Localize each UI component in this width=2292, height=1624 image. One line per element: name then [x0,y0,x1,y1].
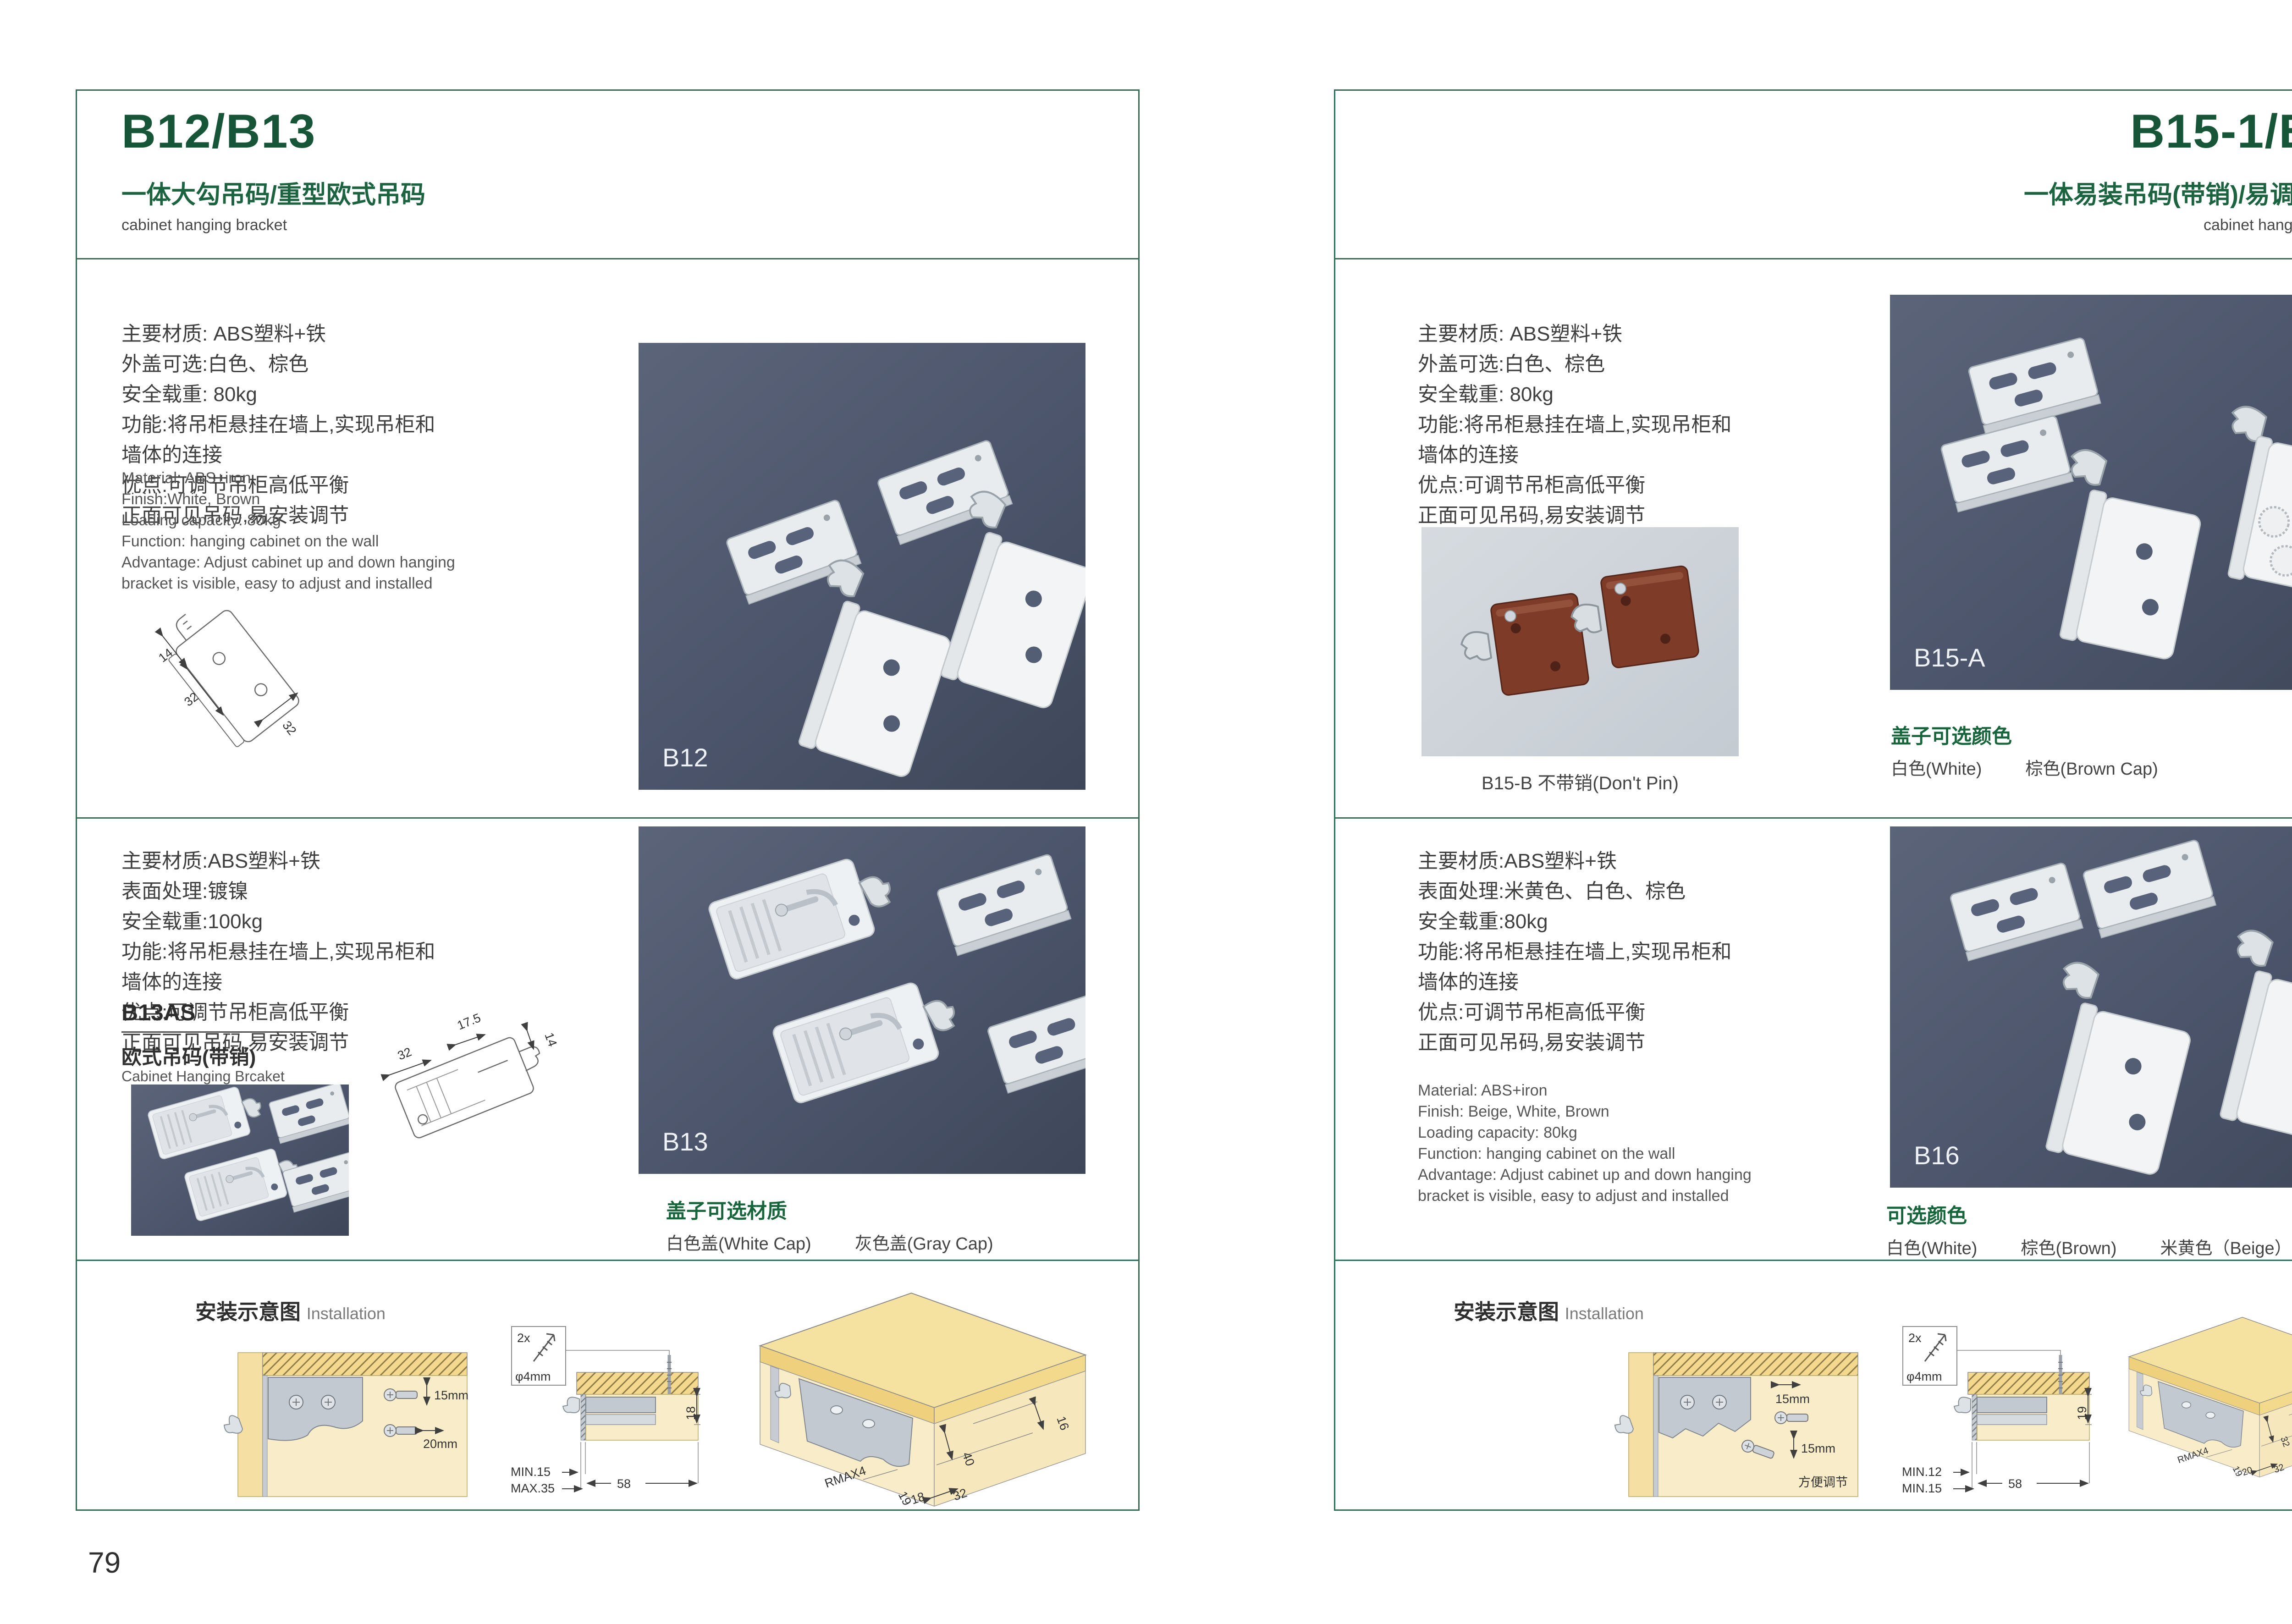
spec-line: 正面可见吊码,易安装调节 [1418,1028,1731,1058]
page-title: B12/B13 [121,105,316,159]
spec-line: 墙体的连接 [121,440,435,470]
install-diagram-screws: 2x φ4mm 18 MIN.15 MAX.35 58 [508,1323,705,1502]
section-divider [77,1260,1138,1261]
spec-line: 表面处理:镀镍 [121,876,435,907]
installation-header: 安装示意图 Installation [195,1295,386,1326]
dimension-label: MIN.15 [1902,1481,1942,1495]
section-divider [77,817,1138,819]
cap-options: 白色盖(White Cap)灰色盖(Gray Cap) [666,1229,1037,1255]
dimension-label: 15mm [1775,1392,1810,1406]
cap-option: 棕色(Brown Cap) [2025,760,2158,779]
dimension-label: 19 [2075,1406,2089,1420]
dimension-label: 32 [280,718,299,738]
cap-color-options: 白色(White)棕色(Brown Cap) [1891,754,2202,780]
spec-line: 安全载重:100kg [121,907,435,937]
spec-line: 表面处理:米黄色、白色、棕色 [1418,876,1731,907]
b13as-dimension-drawing: 32 17.5 14 [366,1005,581,1156]
b12-product-illustration [639,343,1085,790]
cap-option: 灰色盖(Gray Cap) [855,1234,993,1254]
page-title: B15-1/B16 [2130,105,2292,159]
photo-label: B15-A [1914,643,1985,672]
page-subtitle: 一体大勾吊码/重型欧式吊码 [121,174,425,210]
header-divider [77,258,1138,259]
install-diagram-section: 15mm 15mm 方便调节 [1610,1349,1860,1500]
spec-line: 墙体的连接 [121,967,435,997]
b15a-product-illustration [1890,295,2292,690]
model-name-cn: 欧式吊码(带销) [121,1040,256,1070]
screw-diameter-label: φ4mm [1906,1370,1942,1383]
page-subtitle: 一体易装吊码(带销)/易调节吊码 [2024,174,2292,210]
photo-label: B16 [1914,1140,1960,1170]
spec-line: 主要材质: ABS塑料+铁 [1418,319,1731,349]
b13-product-illustration [639,826,1085,1174]
spec-line: 外盖可选:白色、棕色 [121,349,435,380]
install-diagram-screws: 2x φ4mm 19 MIN.12 MIN.15 58 [1899,1323,2096,1502]
spec-line: Loading capacity: 80kg [121,510,455,531]
install-diagram-perspective: 16 40 RMAX4 19 18 32 [716,1272,1120,1507]
caption-text: B15-B 不带销(Don't Pin) [1482,773,1679,793]
dimension-label: 58 [2008,1477,2022,1491]
spec-line: 功能:将吊柜悬挂在墙上,实现吊柜和 [121,937,435,967]
b16-specs-en: Material: ABS+iron Finish: Beige, White,… [1418,1080,1752,1206]
photo-label: B13 [662,1127,708,1156]
color-option: 米黄色（Beige） [2160,1239,2292,1258]
spec-line: 安全载重: 80kg [1418,380,1731,410]
spec-line: 主要材质:ABS塑料+铁 [121,846,435,876]
b16-product-photo: B16 [1890,826,2292,1188]
b16-product-illustration [1890,826,2292,1188]
spec-line: Material: ABS+iron [121,468,455,489]
install-diagram-section: 15mm 20mm [211,1349,477,1500]
installation-header: 安装示意图 Installation [1454,1295,1644,1326]
installation-title-cn: 安装示意图 [195,1300,301,1324]
installation-title-en: Installation [1565,1304,1644,1323]
section-divider [1335,1260,2292,1261]
photo-label: B12 [662,743,708,772]
color-options: 白色(White)棕色(Brown)米黄色（Beige） [1886,1234,2292,1259]
b16-specs-cn: 主要材质:ABS塑料+铁 表面处理:米黄色、白色、棕色 安全载重:80kg 功能… [1418,846,1731,1058]
page-subtitle-en: cabinet hanging bracket [121,216,287,234]
spec-line: 优点:可调节吊柜高低平衡 [1418,997,1731,1028]
spec-line: Advantage: Adjust cabinet up and down ha… [1418,1164,1752,1185]
dimension-label: 15mm [1801,1442,1835,1455]
spec-line: 主要材质: ABS塑料+铁 [121,319,435,349]
cap-option: 白色盖(White Cap) [666,1234,811,1254]
cap-options-title: 盖子可选材质 [666,1195,787,1224]
model-underline [121,1031,316,1033]
spec-line: 功能:将吊柜悬挂在墙上,实现吊柜和 [1418,410,1731,440]
dimension-label: 14 [542,1031,559,1048]
cap-option: 白色(White) [1891,760,1982,779]
b15a-product-photo: B15-A [1890,295,2292,690]
b12-specs-en: Material: ABS+iron Finish:White, Brown L… [121,468,455,594]
spec-line: Loading capacity: 80kg [1418,1122,1752,1143]
installation-title-cn: 安装示意图 [1454,1300,1559,1324]
spec-line: Material: ABS+iron [1418,1080,1752,1101]
spec-line: 安全载重:80kg [1418,907,1731,937]
b12-product-photo: B12 [639,343,1085,790]
spec-line: 安全载重: 80kg [121,380,435,410]
spec-line: Function: hanging cabinet on the wall [1418,1143,1752,1164]
b12-dimension-drawing: 14 32 32 [121,578,322,775]
screw-qty-label: 2x [1908,1331,1922,1345]
color-option: 棕色(Brown) [2021,1239,2116,1258]
dimension-label: 32 [396,1045,413,1062]
screw-qty-label: 2x [517,1331,530,1345]
color-options-title: 可选颜色 [1886,1199,1967,1228]
dimension-label: MIN.15 [511,1465,551,1479]
b13-product-photo: B13 [639,826,1085,1174]
install-diagram-perspective: 30 32 RMAX4 19 20 32 [2096,1272,2292,1507]
dimension-label: 18 [684,1406,698,1420]
spec-line: Function: hanging cabinet on the wall [121,531,455,552]
spec-line: 功能:将吊柜悬挂在墙上,实现吊柜和 [121,410,435,440]
b13as-product-photo [131,1085,349,1236]
b13as-product-illustration [131,1085,349,1236]
catalog-page-left: B12/B13 一体大勾吊码/重型欧式吊码 cabinet hanging br… [76,89,1140,1511]
section-divider [1335,817,2292,819]
screw-diameter-label: φ4mm [515,1370,551,1383]
dimension-label: 20mm [423,1437,457,1451]
spec-line: bracket is visible, easy to adjust and i… [1418,1185,1752,1206]
spec-line: 外盖可选:白色、棕色 [1418,349,1731,380]
spec-line: 墙体的连接 [1418,967,1731,997]
b15b-photo-caption: B15-B 不带销(Don't Pin) [1421,768,1739,795]
dimension-label: 58 [617,1477,631,1491]
b15b-product-illustration [1421,527,1739,756]
catalog-page-right: B15-1/B16 一体易装吊码(带销)/易调节吊码 cabinet hangi… [1334,89,2292,1511]
dimension-label: MIN.12 [1902,1465,1942,1479]
spec-line: 正面可见吊码,易安装调节 [1418,501,1731,531]
spec-line: 墙体的连接 [1418,440,1731,470]
spec-line: 功能:将吊柜悬挂在墙上,实现吊柜和 [1418,937,1731,967]
spec-line: Finish: Beige, White, Brown [1418,1101,1752,1122]
b15b-product-photo [1421,527,1739,756]
installation-title-en: Installation [307,1304,386,1323]
cap-color-title: 盖子可选颜色 [1891,720,2012,749]
header-divider [1335,258,2292,259]
adjust-note: 方便调节 [1798,1475,1848,1489]
model-name-en: Cabinet Hanging Brcaket [121,1068,285,1085]
dimension-label: 17.5 [455,1011,483,1033]
color-option: 白色(White) [1886,1239,1977,1258]
model-code: B13AS [121,999,195,1026]
dimension-label: MAX.35 [511,1481,555,1495]
page-subtitle-en: cabinet hanging bracket [2204,216,2292,234]
spec-line: 主要材质:ABS塑料+铁 [1418,846,1731,876]
dimension-label: 15mm [434,1388,468,1402]
b15-specs-cn: 主要材质: ABS塑料+铁 外盖可选:白色、棕色 安全载重: 80kg 功能:将… [1418,319,1731,531]
spec-line: Advantage: Adjust cabinet up and down ha… [121,552,455,573]
page-number-left: 79 [88,1546,121,1580]
spec-line: 优点:可调节吊柜高低平衡 [1418,470,1731,501]
spec-line: Finish:White, Brown [121,489,455,510]
